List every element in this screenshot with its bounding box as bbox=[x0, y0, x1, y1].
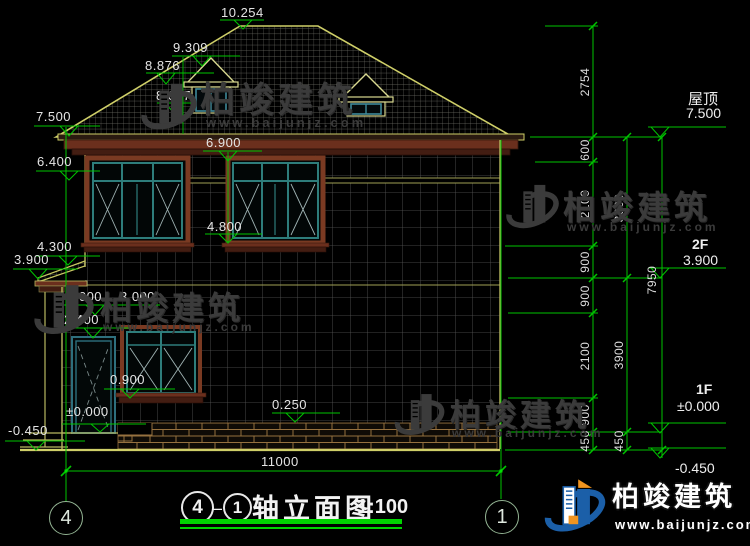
axis-bubble-1: 1 bbox=[485, 500, 519, 534]
dim-2754: 2754 bbox=[578, 68, 592, 97]
floor-1f-label: 1F bbox=[696, 381, 712, 397]
elev-0000: ±0.000 bbox=[66, 404, 109, 419]
elev-0900: 0.900 bbox=[110, 372, 145, 387]
watermark-building-icon bbox=[32, 278, 96, 340]
elev-6400: 6.400 bbox=[37, 154, 72, 169]
floor-1f-level: ±0.000 bbox=[677, 398, 720, 414]
watermark-building-icon bbox=[392, 388, 447, 440]
elev-0250: 0.250 bbox=[272, 397, 307, 412]
logo-url: www.baijunjz.com bbox=[615, 517, 750, 532]
elev-9309: 9.309 bbox=[173, 40, 208, 55]
elev-4800: 4.800 bbox=[207, 219, 242, 234]
eave-cornice bbox=[58, 134, 524, 155]
dim-3900: 3900 bbox=[612, 341, 626, 370]
floor-2f-label: 2F bbox=[692, 236, 708, 252]
dim-2100-l: 2100 bbox=[578, 342, 592, 371]
elev-10254: 10.254 bbox=[221, 5, 264, 20]
logo-building-icon bbox=[543, 472, 607, 538]
dim-7950: 7950 bbox=[645, 266, 659, 295]
window-2f-right bbox=[222, 158, 329, 252]
dim-450-b: 450 bbox=[612, 430, 626, 452]
drawing-scale: 1:100 bbox=[357, 496, 408, 519]
watermark-building-icon bbox=[140, 76, 198, 136]
cad-elevation-drawing: 10.254 9.309 8.876 8.077 7.500 6.900 6.4… bbox=[0, 0, 750, 546]
elev-8876: 8.876 bbox=[145, 58, 180, 73]
window-2f-left bbox=[81, 158, 194, 252]
elev-3900: 3.900 bbox=[14, 252, 49, 267]
elev-m0450: -0.450 bbox=[8, 423, 48, 438]
elev-6900: 6.900 bbox=[206, 135, 241, 150]
watermark-building-icon bbox=[505, 178, 560, 234]
axis-bubble-4: 4 bbox=[49, 501, 83, 535]
dim-600: 600 bbox=[578, 139, 592, 161]
floor-2f-level: 3.900 bbox=[683, 252, 718, 268]
window-1f bbox=[116, 327, 206, 403]
ground-level-label: -0.450 bbox=[675, 460, 715, 476]
logo-name: 柏竣建筑 bbox=[612, 475, 736, 514]
dim-900-a: 900 bbox=[578, 251, 592, 273]
title-underline-thick bbox=[180, 519, 402, 524]
drawing-layer bbox=[0, 0, 750, 546]
title-dash: – bbox=[212, 498, 223, 519]
dim-11000: 11000 bbox=[261, 454, 299, 469]
elev-7500: 7.500 bbox=[36, 109, 71, 124]
title-axis-end-bubble: 1 bbox=[223, 493, 252, 522]
roof-level: 7.500 bbox=[686, 105, 721, 121]
dim-900-b: 900 bbox=[578, 285, 592, 307]
title-underline-thin bbox=[180, 527, 402, 529]
